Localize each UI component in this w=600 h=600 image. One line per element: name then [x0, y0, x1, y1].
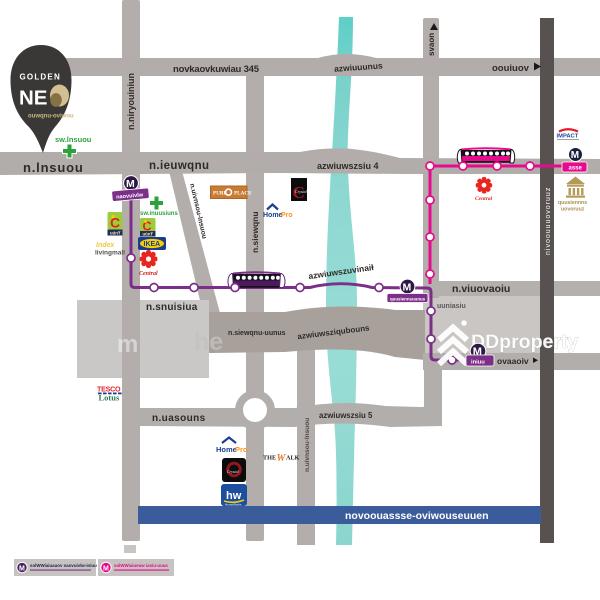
svg-text:quusiennns: quusiennns: [558, 200, 587, 206]
svg-text:n.uasouns: n.uasouns: [152, 413, 206, 424]
svg-text:M: M: [19, 565, 25, 572]
svg-text:M: M: [126, 178, 135, 190]
svg-text:sw.inuusiuns: sw.inuusiuns: [140, 211, 178, 217]
svg-text:M: M: [403, 281, 412, 293]
svg-text:he: he: [194, 328, 223, 356]
svg-text:n.viuovaoiu: n.viuovaoiu: [452, 283, 510, 295]
svg-text:NE: NE: [19, 87, 47, 110]
svg-text:Home: Home: [216, 445, 237, 454]
svg-text:iniuu: iniuu: [471, 360, 485, 366]
svg-text:Lotus: Lotus: [99, 393, 120, 403]
svg-text:livingmall: livingmall: [95, 250, 125, 257]
svg-text:ouwqnu-oviwou: ouwqnu-oviwou: [28, 114, 74, 120]
svg-text:W: W: [277, 453, 287, 464]
svg-text:Crystal: Crystal: [227, 469, 240, 474]
svg-text:PLACE: PLACE: [234, 191, 252, 197]
svg-text:n.uivnsou-lnsuou: n.uivnsou-lnsuou: [304, 418, 311, 472]
svg-text:uúnŦ: uúnŦ: [110, 230, 121, 235]
svg-text:solWWiaiueuw iasiu-uuus: solWWiaiueuw iasiu-uuus: [114, 563, 168, 568]
svg-text:m: m: [117, 331, 138, 358]
svg-text:hw: hw: [226, 490, 242, 502]
svg-text:ALK: ALK: [286, 455, 300, 462]
svg-text:n.niryouiniun: n.niryouiniun: [126, 73, 136, 130]
svg-text:DDproperty: DDproperty: [471, 331, 578, 353]
svg-text:M: M: [103, 565, 109, 572]
svg-text:ovaaoiv: ovaaoiv: [497, 356, 529, 366]
svg-text:n.snuisiua: n.snuisiua: [146, 302, 198, 313]
svg-text:novkaovkuwiau 345: novkaovkuwiau 345: [173, 64, 260, 75]
svg-text:azwiuwszsiu 5: azwiuwszsiu 5: [319, 411, 373, 420]
svg-text:HomeWorks: HomeWorks: [225, 503, 242, 507]
svg-text:n.siewqnu-uunus: n.siewqnu-uunus: [228, 330, 286, 337]
svg-text:sw.lnsuou: sw.lnsuou: [55, 135, 92, 144]
svg-text:azwiuwszsiu 4: azwiuwszsiu 4: [317, 161, 379, 171]
svg-text:uúnŦ: uúnŦ: [143, 232, 154, 237]
svg-text:novoouassse-oviwouseuuen: novoouassse-oviwouseuuen: [345, 510, 489, 522]
svg-text:nivoouuuovoruuz: nivoouuuovoruuz: [545, 187, 552, 255]
svg-text:Home: Home: [263, 212, 283, 219]
svg-text:n.lnsuou: n.lnsuou: [23, 160, 84, 175]
svg-text:uovoruuz: uovoruuz: [561, 207, 585, 213]
svg-text:Index: Index: [96, 242, 115, 249]
svg-text:M: M: [571, 150, 579, 161]
svg-text:IKEA: IKEA: [144, 241, 161, 248]
svg-text:IMPACT: IMPACT: [557, 134, 579, 140]
svg-text:oouiuov: oouiuov: [492, 63, 530, 74]
svg-text:n.siewqnu: n.siewqnu: [250, 211, 260, 253]
svg-text:n.ieuwqnu: n.ieuwqnu: [149, 160, 209, 172]
svg-text:Central: Central: [475, 196, 493, 202]
svg-text:Pro: Pro: [281, 212, 293, 219]
svg-text:Pro: Pro: [235, 445, 248, 454]
svg-text:uuniasiu: uuniasiu: [437, 303, 466, 310]
svg-text:THE: THE: [263, 455, 276, 462]
svg-text:svaon: svaon: [427, 33, 436, 56]
svg-text:quusiennsuunus: quusiennsuunus: [390, 296, 426, 301]
svg-text:GOLDEN: GOLDEN: [20, 73, 61, 82]
svg-text:solWWiaiuauov naovuivlw-iniuu: solWWiaiuauov naovuivlw-iniuu: [30, 563, 97, 568]
svg-text:asse: asse: [569, 166, 583, 172]
svg-text:Crystal: Crystal: [295, 189, 308, 194]
svg-text:Central: Central: [139, 271, 158, 277]
